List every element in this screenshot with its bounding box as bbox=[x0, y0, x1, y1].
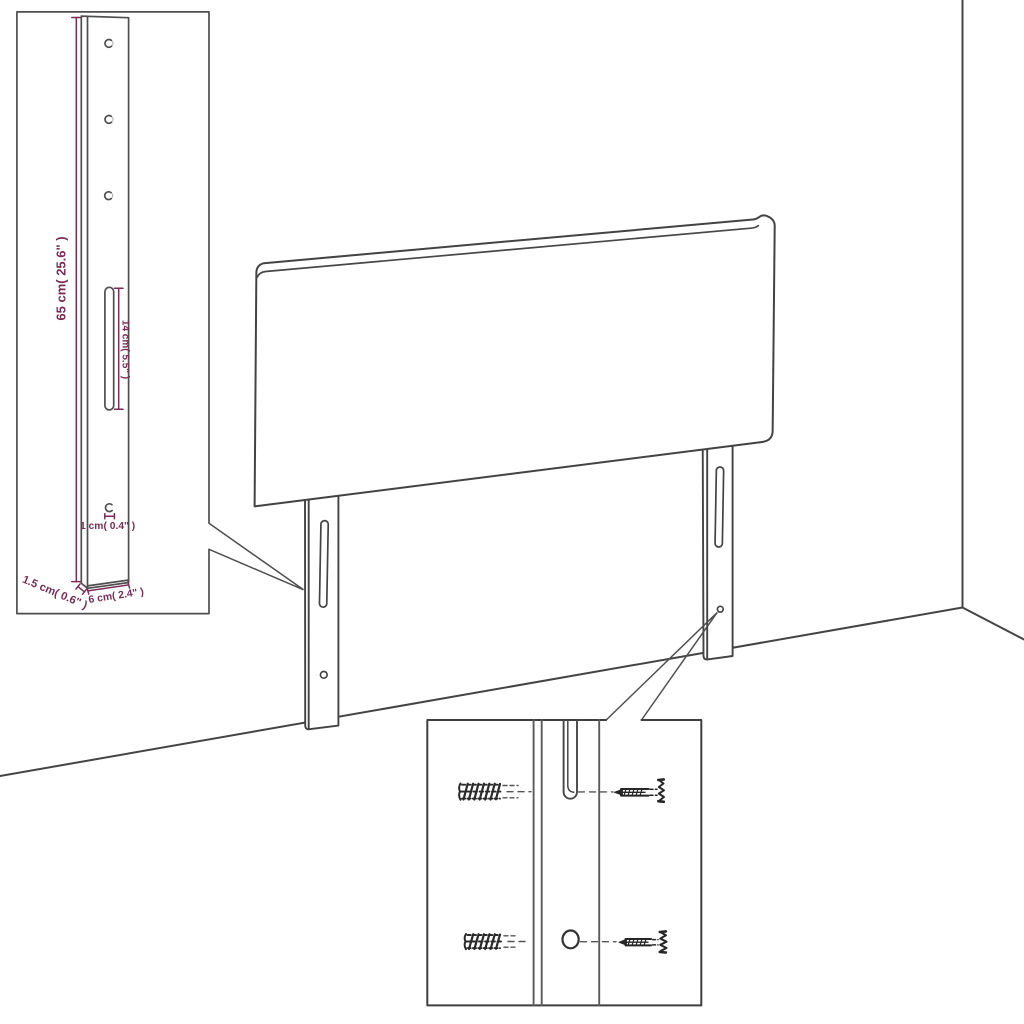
svg-text:65 cm( 25.6" ): 65 cm( 25.6" ) bbox=[53, 236, 68, 320]
svg-text:14 cm( 5.5" ): 14 cm( 5.5" ) bbox=[119, 320, 130, 379]
svg-text:1 cm( 0.4" ): 1 cm( 0.4" ) bbox=[80, 521, 135, 532]
